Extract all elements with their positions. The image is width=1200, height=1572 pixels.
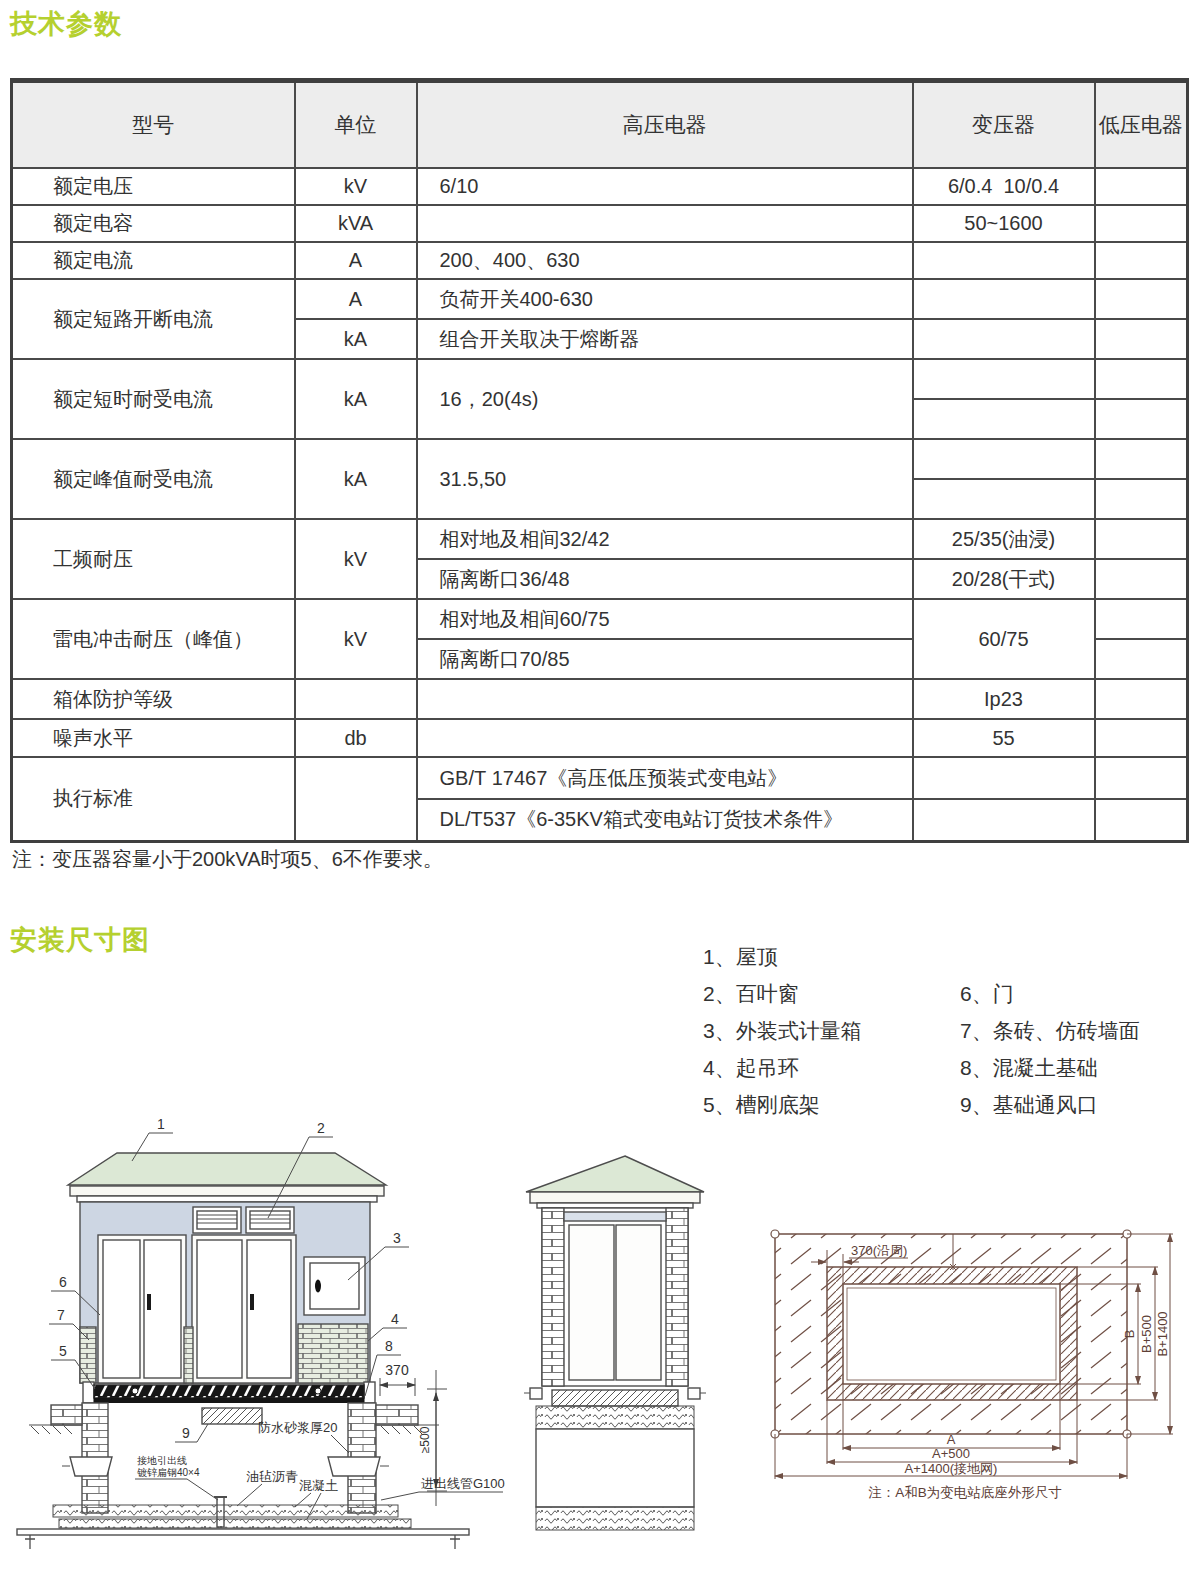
- rated-breaking-hv-b: 组合开关取决于熔断器: [417, 319, 913, 359]
- side-brick-column-right: [666, 1208, 688, 1386]
- row-protection: 箱体防护等级 Ip23: [12, 679, 1188, 719]
- plan-note: 注：A和B为变电站底座外形尺寸: [868, 1485, 1062, 1500]
- empty-cell: [913, 399, 1095, 439]
- protection-label: 箱体防护等级: [12, 679, 295, 719]
- plan-dim-a1400-label: A+1400(接地网): [905, 1461, 998, 1476]
- noise-label: 噪声水平: [12, 719, 295, 757]
- empty-cell: [913, 319, 1095, 359]
- legend-item: 7、条砖、仿砖墙面: [960, 1012, 1140, 1049]
- ann-ground-line1: 接地引出线: [137, 1455, 187, 1466]
- left-door: [98, 1235, 186, 1383]
- plan-dim-b-label: B: [1122, 1330, 1137, 1339]
- col-header-transformer: 变压器: [913, 81, 1095, 169]
- empty-cell: [913, 439, 1095, 479]
- col-header-model: 型号: [12, 81, 295, 169]
- row-rated-breaking-a: 额定短路开断电流 A 负荷开关400-630: [12, 279, 1188, 319]
- front-callout-1: 1: [157, 1116, 165, 1132]
- front-callout-8: 8: [385, 1338, 393, 1354]
- ann-felt: 油毡沥青: [246, 1469, 298, 1484]
- row-standards-a: 执行标准 GB/T 17467《高压低压预装式变电站》: [12, 757, 1188, 799]
- side-door-panel-right: [616, 1225, 661, 1380]
- plan-dim-a500-label: A+500: [932, 1446, 970, 1461]
- rated-capacity-unit: kVA: [295, 205, 417, 242]
- short-time-hv: 16，20(4s): [417, 359, 913, 439]
- empty-cell: [1095, 439, 1188, 479]
- rated-breaking-unit-a: A: [295, 279, 417, 319]
- side-lintel: [564, 1212, 666, 1221]
- rated-voltage-hv: 6/10: [417, 168, 913, 205]
- side-base-strip: [552, 1390, 678, 1406]
- empty-cell: [913, 242, 1095, 279]
- rated-current-hv: 200、400、630: [417, 242, 913, 279]
- empty-cell: [1095, 679, 1188, 719]
- col-header-lv: 低压电器: [1095, 81, 1188, 169]
- row-noise: 噪声水平 db 55: [12, 719, 1188, 757]
- front-callout-9: 9: [182, 1425, 190, 1441]
- empty-cell: [1095, 639, 1188, 679]
- empty-cell: [1095, 359, 1188, 399]
- metering-box-window: [304, 1257, 365, 1315]
- row-lightning-a: 雷电冲击耐压（峰值） kV 相对地及相间60/75 60/75: [12, 599, 1188, 639]
- empty-cell: [417, 205, 913, 242]
- vent-block: [202, 1408, 262, 1424]
- empty-cell: [1095, 519, 1188, 559]
- spec-table: 型号 单位 高压电器 变压器 低压电器 额定电压 kV 6/10 6/0.4 1…: [10, 78, 1189, 843]
- row-power-freq-a: 工频耐压 kV 相对地及相间32/42 25/35(油浸): [12, 519, 1188, 559]
- side-roof: [526, 1156, 704, 1192]
- front-callout-3: 3: [393, 1230, 401, 1246]
- foundation-plan-drawing: 370(沿周) B B+500 B+1400 A A+500 A+1400(接地…: [755, 1192, 1200, 1517]
- legend-item: 4、起吊环: [703, 1049, 862, 1086]
- side-eaves: [530, 1192, 700, 1203]
- standards-hv-b: DL/T537《6-35KV箱式变电站订货技术条件》: [417, 799, 913, 841]
- rated-breaking-unit-b: kA: [295, 319, 417, 359]
- peak-hv: 31.5,50: [417, 439, 913, 519]
- empty-cell: [295, 757, 417, 841]
- front-callout-4: 4: [391, 1311, 399, 1327]
- rated-breaking-hv-a: 负荷开关400-630: [417, 279, 913, 319]
- power-freq-hv-a: 相对地及相间32/42: [417, 519, 913, 559]
- section-title-install-dims: 安装尺寸图: [10, 922, 150, 958]
- legend-item: 3、外装式计量箱: [703, 1012, 862, 1049]
- rated-current-label: 额定电流: [12, 242, 295, 279]
- rated-voltage-tx: 6/0.4 10/0.4: [913, 168, 1095, 205]
- power-freq-tx-a: 25/35(油浸): [913, 519, 1095, 559]
- col-header-unit: 单位: [295, 81, 417, 169]
- side-elevation-drawing: [480, 1148, 770, 1538]
- row-short-time-a: 额定短时耐受电流 kA 16，20(4s): [12, 359, 1188, 399]
- power-freq-hv-b: 隔离断口36/48: [417, 559, 913, 599]
- plan-dim-b500-label: B+500: [1139, 1315, 1154, 1353]
- front-callout-7: 7: [57, 1307, 65, 1323]
- peak-label: 额定峰值耐受电流: [12, 439, 295, 519]
- side-scroll-band-top: [536, 1406, 694, 1429]
- legend-item: 6、门: [960, 975, 1140, 1012]
- side-scroll-band-bottom: [536, 1507, 694, 1530]
- empty-cell: [1095, 559, 1188, 599]
- ann-ground-line2: 镀锌扁钢40×4: [137, 1467, 200, 1478]
- standards-label: 执行标准: [12, 757, 295, 841]
- power-freq-tx-b: 20/28(干式): [913, 559, 1095, 599]
- power-freq-label: 工频耐压: [12, 519, 295, 599]
- plan-dim-a-label: A: [947, 1432, 956, 1447]
- empty-cell: [913, 359, 1095, 399]
- legend-item: 9、基础通风口: [960, 1086, 1140, 1123]
- channel-steel-base: [83, 1382, 375, 1403]
- front-elevation-drawing: 1 2 3 4 5 6 7 8 9 370 防水砂浆厚20 接地引出线 镀锌扁钢…: [15, 1108, 515, 1572]
- empty-cell: [1095, 399, 1188, 439]
- center-door: [192, 1235, 296, 1383]
- rated-breaking-label: 额定短路开断电流: [12, 279, 295, 359]
- row-rated-current: 额定电流 A 200、400、630: [12, 242, 1188, 279]
- empty-cell: [417, 719, 913, 757]
- short-time-label: 额定短时耐受电流: [12, 359, 295, 439]
- front-dim-370: 370: [385, 1362, 409, 1378]
- empty-cell: [1095, 319, 1188, 359]
- legend-item: 8、混凝土基础: [960, 1049, 1140, 1086]
- plan-dim-370-label: 370(沿周): [851, 1243, 907, 1258]
- anchor-pins: [25, 1535, 460, 1549]
- empty-cell: [1095, 205, 1188, 242]
- rated-capacity-label: 额定电容: [12, 205, 295, 242]
- rated-current-unit: A: [295, 242, 417, 279]
- front-dim-500: ≥500: [418, 1426, 432, 1453]
- section-title-tech-params: 技术参数: [10, 6, 122, 42]
- row-rated-voltage: 额定电压 kV 6/10 6/0.4 10/0.4: [12, 168, 1188, 205]
- rated-voltage-label: 额定电压: [12, 168, 295, 205]
- eaves-band: [70, 1186, 384, 1196]
- empty-cell: [1095, 168, 1188, 205]
- empty-cell: [1095, 719, 1188, 757]
- empty-cell: [1095, 799, 1188, 841]
- rated-voltage-unit: kV: [295, 168, 417, 205]
- roof-shape: [68, 1153, 386, 1185]
- foundation-section: [17, 1403, 469, 1549]
- power-freq-unit: kV: [295, 519, 417, 599]
- legend-item: 1、屋顶: [703, 938, 862, 975]
- foundation-opening: [843, 1284, 1060, 1384]
- short-time-unit: kA: [295, 359, 417, 439]
- empty-cell: [417, 679, 913, 719]
- front-callout-6: 6: [59, 1274, 67, 1290]
- row-rated-capacity: 额定电容 kVA 50~1600: [12, 205, 1188, 242]
- legend-item: 2、百叶窗: [703, 975, 862, 1012]
- empty-cell: [913, 799, 1095, 841]
- table-note: 注：变压器容量小于200kVA时项5、6不作要求。: [12, 846, 443, 873]
- ann-waterproof: 防水砂浆厚20: [258, 1420, 337, 1435]
- building-side: [524, 1156, 706, 1530]
- plan-dim-b1400-label: B+1400: [1155, 1311, 1170, 1356]
- ann-concrete: 混凝土: [299, 1478, 338, 1493]
- empty-cell: [1095, 479, 1188, 519]
- side-brick-column-left: [542, 1208, 564, 1386]
- peak-unit: kA: [295, 439, 417, 519]
- legend-item: 5、槽刚底架: [703, 1086, 862, 1123]
- lightning-unit: kV: [295, 599, 417, 679]
- empty-cell: [913, 479, 1095, 519]
- side-door-panel-left: [569, 1225, 614, 1380]
- empty-cell: [913, 279, 1095, 319]
- legend-column-right: 6、门 7、条砖、仿砖墙面 8、混凝土基础 9、基础通风口: [960, 975, 1140, 1123]
- eaves-step: [77, 1196, 377, 1202]
- empty-cell: [295, 679, 417, 719]
- empty-cell: [913, 757, 1095, 799]
- noise-unit: db: [295, 719, 417, 757]
- lightning-hv-a: 相对地及相间60/75: [417, 599, 913, 639]
- catalog-page: 技术参数 型号 单位 高压电器 变压器 低压电器 额定电压 kV 6/10 6/…: [0, 0, 1200, 1572]
- noise-tx: 55: [913, 719, 1095, 757]
- protection-tx: Ip23: [913, 679, 1095, 719]
- lightning-tx: 60/75: [913, 599, 1095, 679]
- side-foundation-block: [536, 1429, 694, 1507]
- lightning-label: 雷电冲击耐压（峰值）: [12, 599, 295, 679]
- empty-cell: [1095, 279, 1188, 319]
- standards-hv-a: GB/T 17467《高压低压预装式变电站》: [417, 757, 913, 799]
- empty-cell: [1095, 757, 1188, 799]
- col-header-hv: 高压电器: [417, 81, 913, 169]
- rated-capacity-tx: 50~1600: [913, 205, 1095, 242]
- empty-cell: [1095, 599, 1188, 639]
- front-callout-5: 5: [59, 1343, 67, 1359]
- legend-column-left: 1、屋顶 2、百叶窗 3、外装式计量箱 4、起吊环 5、槽刚底架: [703, 938, 862, 1123]
- dim-370-right: [380, 1378, 415, 1396]
- lightning-hv-b: 隔离断口70/85: [417, 639, 913, 679]
- front-callout-2: 2: [317, 1120, 325, 1136]
- row-peak-a: 额定峰值耐受电流 kA 31.5,50: [12, 439, 1188, 479]
- empty-cell: [1095, 242, 1188, 279]
- header-row: 型号 单位 高压电器 变压器 低压电器: [12, 81, 1188, 169]
- plan-geometry: [771, 1230, 1173, 1479]
